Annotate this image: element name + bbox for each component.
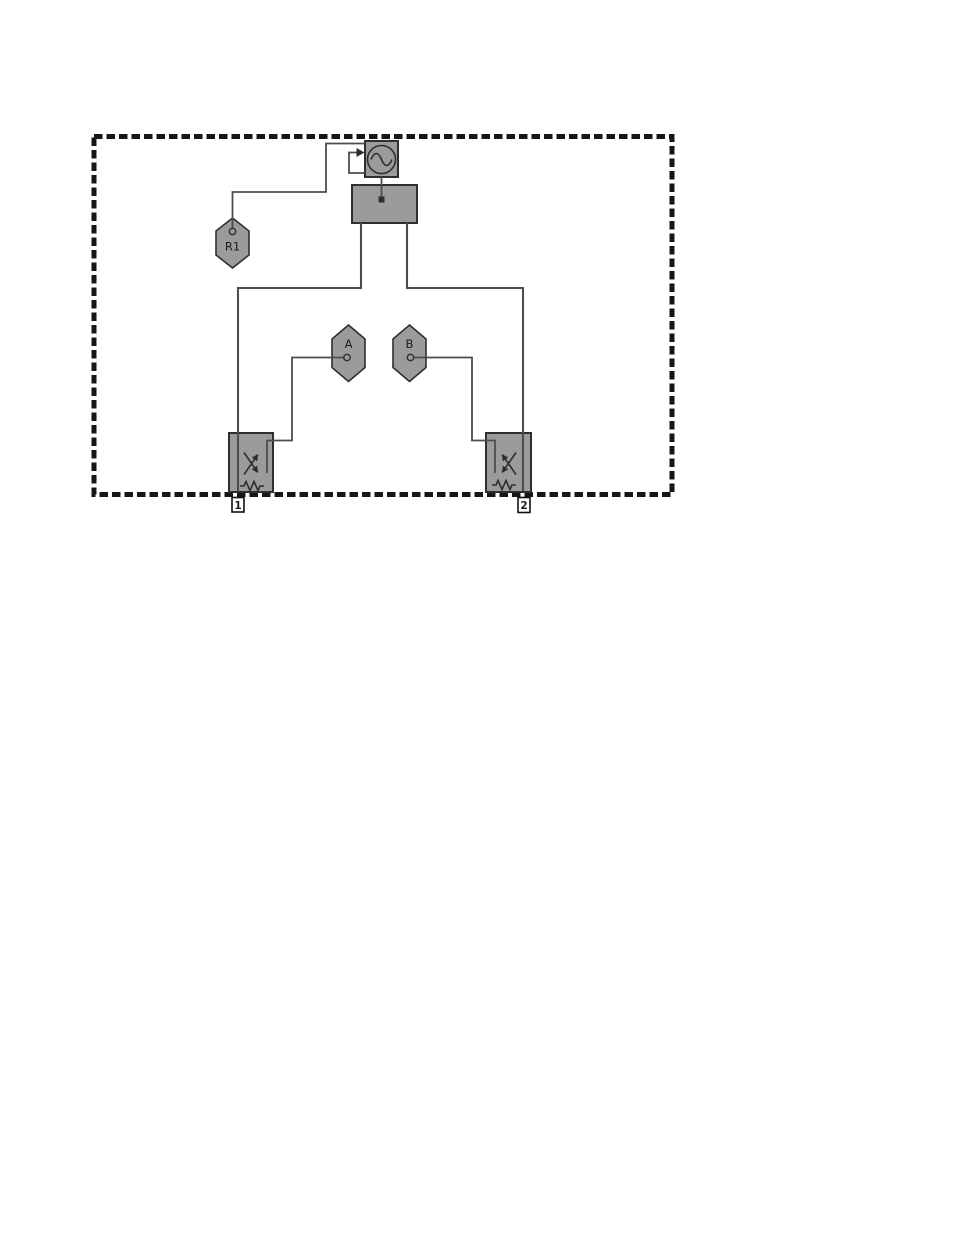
power-splitter xyxy=(352,185,417,223)
receiver-a-port xyxy=(344,354,350,360)
receiver-a-label: A xyxy=(345,337,353,351)
rf-source xyxy=(349,141,398,177)
port1-label: 1 xyxy=(232,498,244,513)
port2-coupler xyxy=(486,433,531,492)
port2-label: 2 xyxy=(518,498,530,513)
network-analyzer-block-diagram: R1 A B 1 2 xyxy=(0,0,954,1235)
receiver-b-label: B xyxy=(406,337,414,351)
receiver-r1-port xyxy=(229,228,235,234)
wire-receiver-a-to-port1-coupled-arm xyxy=(267,358,345,474)
port1-label-text: 1 xyxy=(234,500,241,512)
receiver-b: B xyxy=(393,325,426,382)
port2-label-text: 2 xyxy=(520,500,527,512)
receiver-b-port xyxy=(407,354,413,360)
receiver-a: A xyxy=(332,325,365,382)
receiver-a-hexagon xyxy=(332,325,365,382)
splitter-input-port-dot xyxy=(379,197,385,203)
document-page: R1 A B 1 2 xyxy=(0,0,954,1235)
receiver-b-hexagon xyxy=(393,325,426,382)
feedback-arrow-icon xyxy=(357,148,365,157)
wire-source-to-r1 xyxy=(233,144,366,229)
wire-receiver-b-to-port2-coupled-arm xyxy=(413,358,495,474)
receiver-r1-label: R1 xyxy=(225,240,240,254)
